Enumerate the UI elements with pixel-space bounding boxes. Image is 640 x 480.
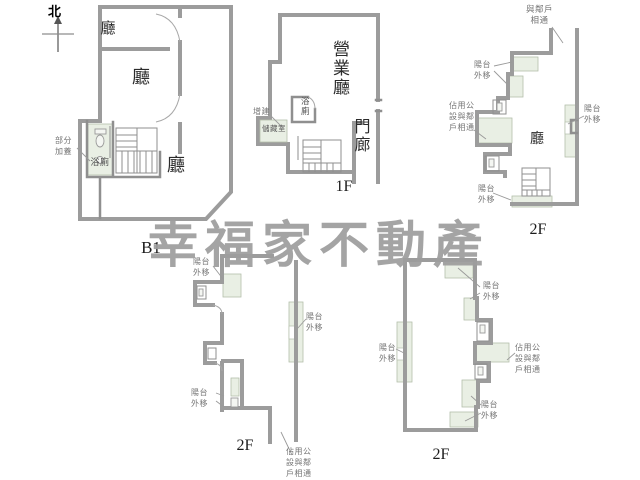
f2tr-balcony-note-bottom: 陽台外移 [478,184,497,206]
floorplan-sheet: 北 廳 廳 廳 浴廁 部分加蓋 B1 [0,0,640,480]
f2tr-caption: 2F [524,221,552,239]
f2tr-neighbor-note: 與鄰戶相通 [526,5,553,28]
b1-room-main-label: 廳 [160,151,192,177]
b1-bathroom-label: 浴廁 [86,157,114,169]
f2tr-balcony-note-right: 陽台外移 [584,104,603,126]
f2tr-balcony-note-left: 陽台外移 [474,60,493,82]
f2br-caption: 2F [426,446,456,464]
f2br-balcony-note-top: 陽台外移 [483,281,502,303]
watermark: 幸福家不動產 [148,205,490,277]
f2tr-hall-label: 廳 [526,128,548,148]
b1-partial-addition-note: 部分加蓋 [55,136,74,158]
compass-north-label: 北 [48,1,70,20]
f1-porch-label: 門廊 [353,119,372,155]
f2br-balcony-note-left: 陽台外移 [379,343,398,365]
b1-room-top-label: 廳 [96,17,120,38]
f2bl-public-note: 佔用公設與鄰戶相通 [286,447,313,479]
f2-bottom-left-plan-drawing [175,250,327,462]
f1-addition-note: 增建 [253,107,272,118]
b1-room-mid-label: 廳 [126,63,156,89]
f2-top-right-plan-drawing [448,0,640,212]
b1-plan-drawing [60,0,240,232]
f2br-balcony-note-bottom: 陽台外移 [481,400,500,422]
f2bl-caption: 2F [230,437,260,455]
f1-business-hall-label: 營業廳 [331,40,352,97]
f2bl-balcony-note-bottom: 陽台外移 [191,388,210,410]
f2tr-public-note: 佔用公設與鄰戶相通 [449,101,476,133]
f2br-public-note: 佔用公設與鄰戶相通 [515,343,542,375]
f2bl-balcony-note-right: 陽台外移 [306,312,325,334]
f1-plan-drawing [250,8,395,200]
f1-bathroom-label: 浴廁 [300,98,311,117]
f1-storage-label: 儲藏室 [262,124,288,134]
f1-caption: 1F [330,178,358,196]
